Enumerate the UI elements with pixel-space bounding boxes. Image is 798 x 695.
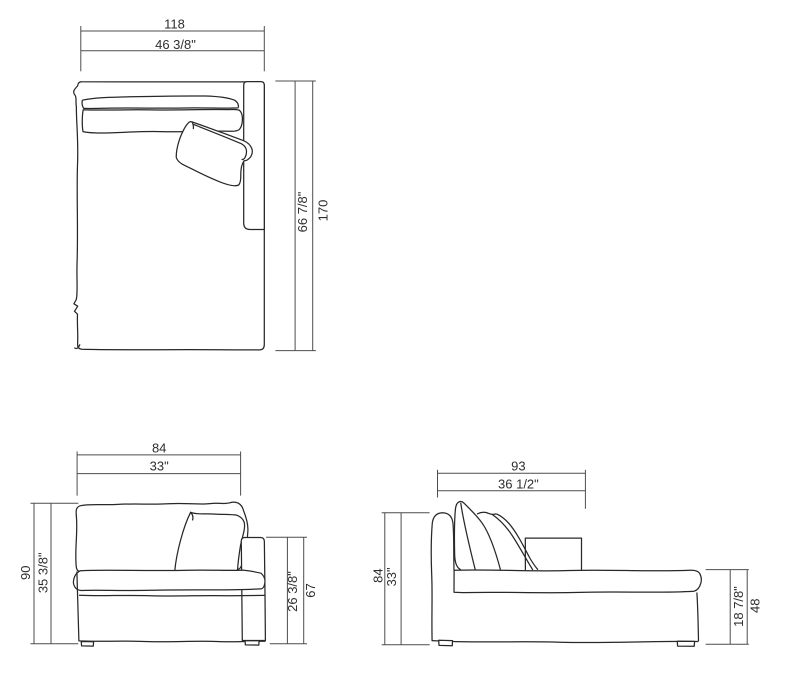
svg-text:118: 118 — [164, 17, 185, 32]
svg-text:33": 33" — [150, 458, 169, 473]
svg-text:18 7/8": 18 7/8" — [731, 586, 746, 627]
svg-text:66 7/8": 66 7/8" — [295, 191, 310, 232]
svg-text:90: 90 — [18, 566, 33, 580]
svg-text:35 3/8": 35 3/8" — [35, 552, 50, 593]
svg-text:170: 170 — [315, 200, 330, 222]
svg-text:84: 84 — [152, 441, 166, 456]
svg-text:67: 67 — [303, 583, 318, 597]
svg-text:26 3/8": 26 3/8" — [285, 571, 300, 612]
svg-text:36 1/2": 36 1/2" — [498, 476, 539, 491]
svg-text:46 3/8": 46 3/8" — [155, 37, 196, 52]
svg-text:48: 48 — [747, 599, 762, 613]
svg-text:93: 93 — [511, 458, 525, 473]
svg-text:33": 33" — [384, 567, 399, 586]
